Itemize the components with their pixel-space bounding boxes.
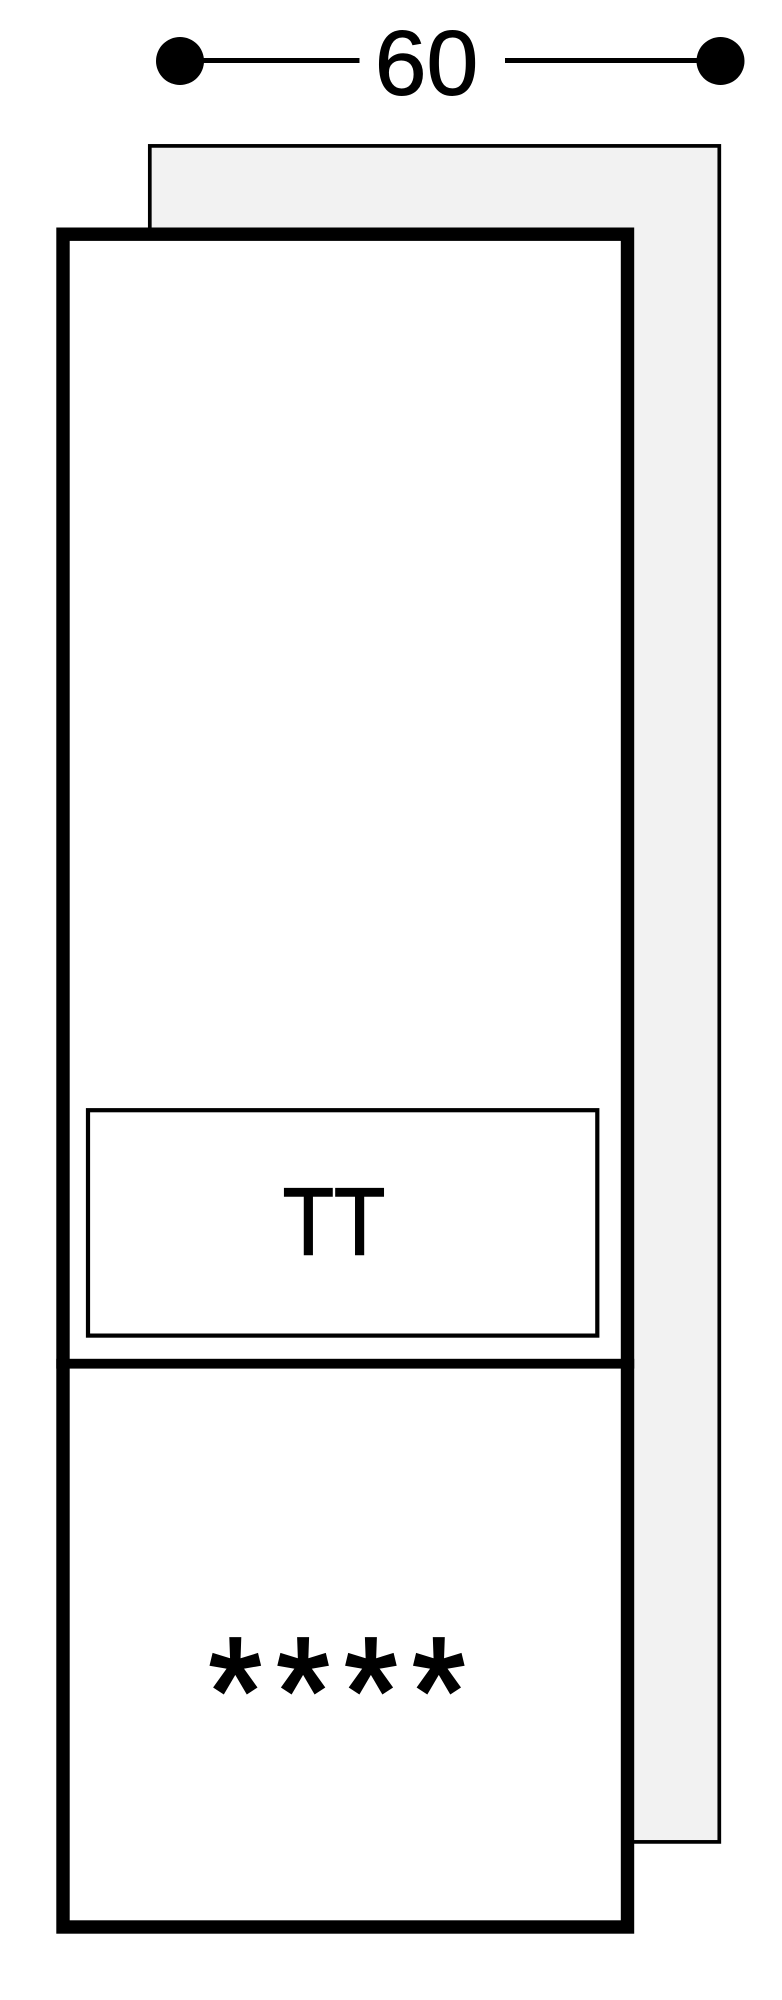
svg-text:TT: TT bbox=[283, 1169, 386, 1276]
svg-text:60: 60 bbox=[375, 13, 479, 115]
